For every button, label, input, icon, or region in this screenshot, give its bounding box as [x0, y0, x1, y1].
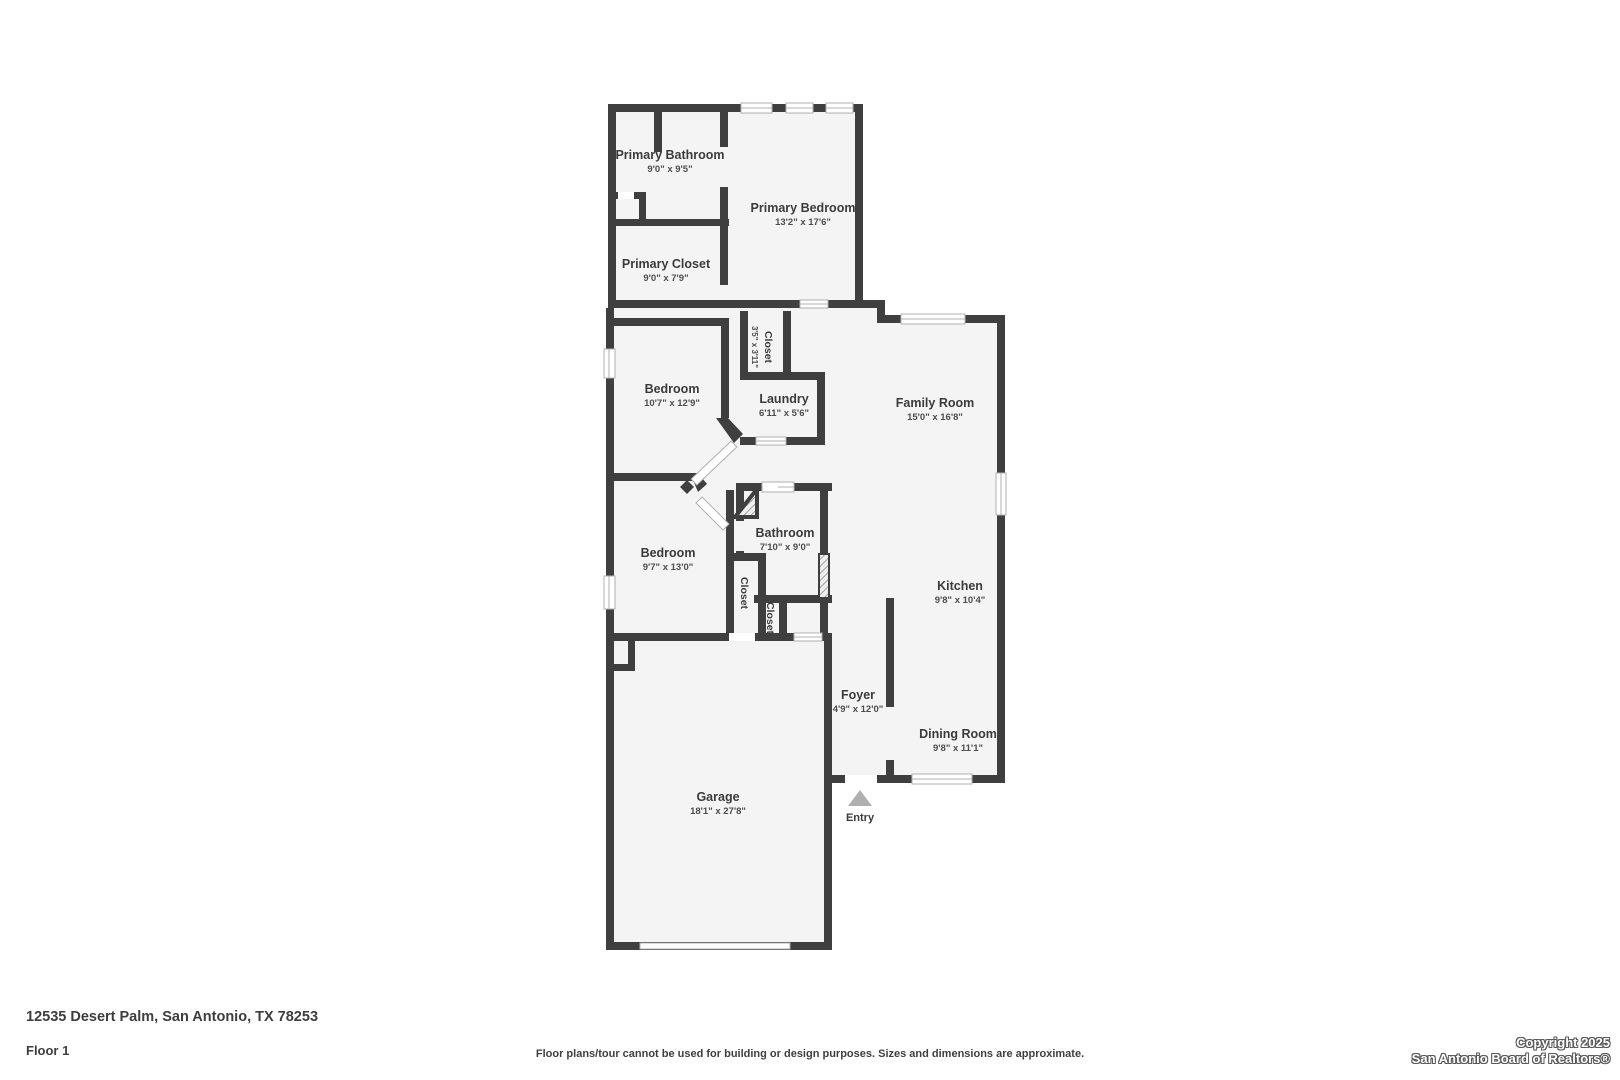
dims-primary-closet: 9'0" x 7'9": [643, 273, 688, 284]
label-closet-2: Closet: [764, 602, 776, 635]
copyright-line-2: San Antonio Board of Realtors®: [1412, 1051, 1610, 1067]
dims-primary-bedroom: 13'2" x 17'6": [775, 217, 831, 228]
label-closet-1: Closet: [738, 577, 750, 610]
floor-plan-drawing: Primary Bathroom 9'0" x 9'5" Primary Clo…: [0, 0, 1620, 1080]
floor-plan-page: Primary Bathroom 9'0" x 9'5" Primary Clo…: [0, 0, 1620, 1080]
svg-text:Closet: Closet: [738, 577, 750, 610]
label-bedroom-2: Bedroom: [641, 546, 696, 560]
label-kitchen: Kitchen: [937, 579, 983, 593]
label-primary-bedroom: Primary Bedroom: [751, 201, 856, 215]
dims-dining-room: 9'8" x 11'1": [933, 743, 983, 754]
copyright-text: Copyright 2025 San Antonio Board of Real…: [1412, 1035, 1610, 1067]
dims-garage: 18'1" x 27'8": [690, 806, 746, 817]
label-garage: Garage: [696, 790, 739, 804]
dims-primary-bathroom: 9'0" x 9'5": [647, 164, 692, 175]
door-hatch: [819, 554, 829, 598]
dims-bathroom: 7'10" x 9'0": [760, 542, 811, 553]
label-primary-closet: Primary Closet: [622, 257, 711, 271]
label-dining-room: Dining Room: [919, 727, 997, 741]
copyright-line-1: Copyright 2025: [1412, 1035, 1610, 1051]
label-primary-bathroom: Primary Bathroom: [615, 148, 724, 162]
label-bathroom: Bathroom: [755, 526, 814, 540]
svg-text:Closet: Closet: [762, 331, 774, 364]
label-bedroom-1: Bedroom: [645, 382, 700, 396]
dims-laundry: 6'11" x 5'6": [759, 408, 809, 419]
dims-family-room: 15'0" x 16'8": [907, 412, 963, 423]
dims-kitchen: 9'8" x 10'4": [935, 595, 986, 606]
svg-text:3'5" x 3'11": 3'5" x 3'11": [750, 326, 759, 368]
label-family-room: Family Room: [896, 396, 975, 410]
entry-arrow-icon: [848, 790, 872, 806]
floor-label: Floor 1: [26, 1043, 69, 1058]
svg-text:Closet: Closet: [764, 602, 776, 635]
label-laundry: Laundry: [759, 392, 808, 406]
dims-bedroom-2: 9'7" x 13'0": [643, 562, 694, 573]
label-entry: Entry: [846, 812, 875, 824]
label-foyer: Foyer: [841, 688, 875, 702]
property-address: 12535 Desert Palm, San Antonio, TX 78253: [26, 1009, 318, 1025]
dims-bedroom-1: 10'7" x 12'9": [644, 398, 700, 409]
disclaimer-text: Floor plans/tour cannot be used for buil…: [536, 1048, 1084, 1060]
dims-foyer: 4'9" x 12'0": [833, 704, 884, 715]
